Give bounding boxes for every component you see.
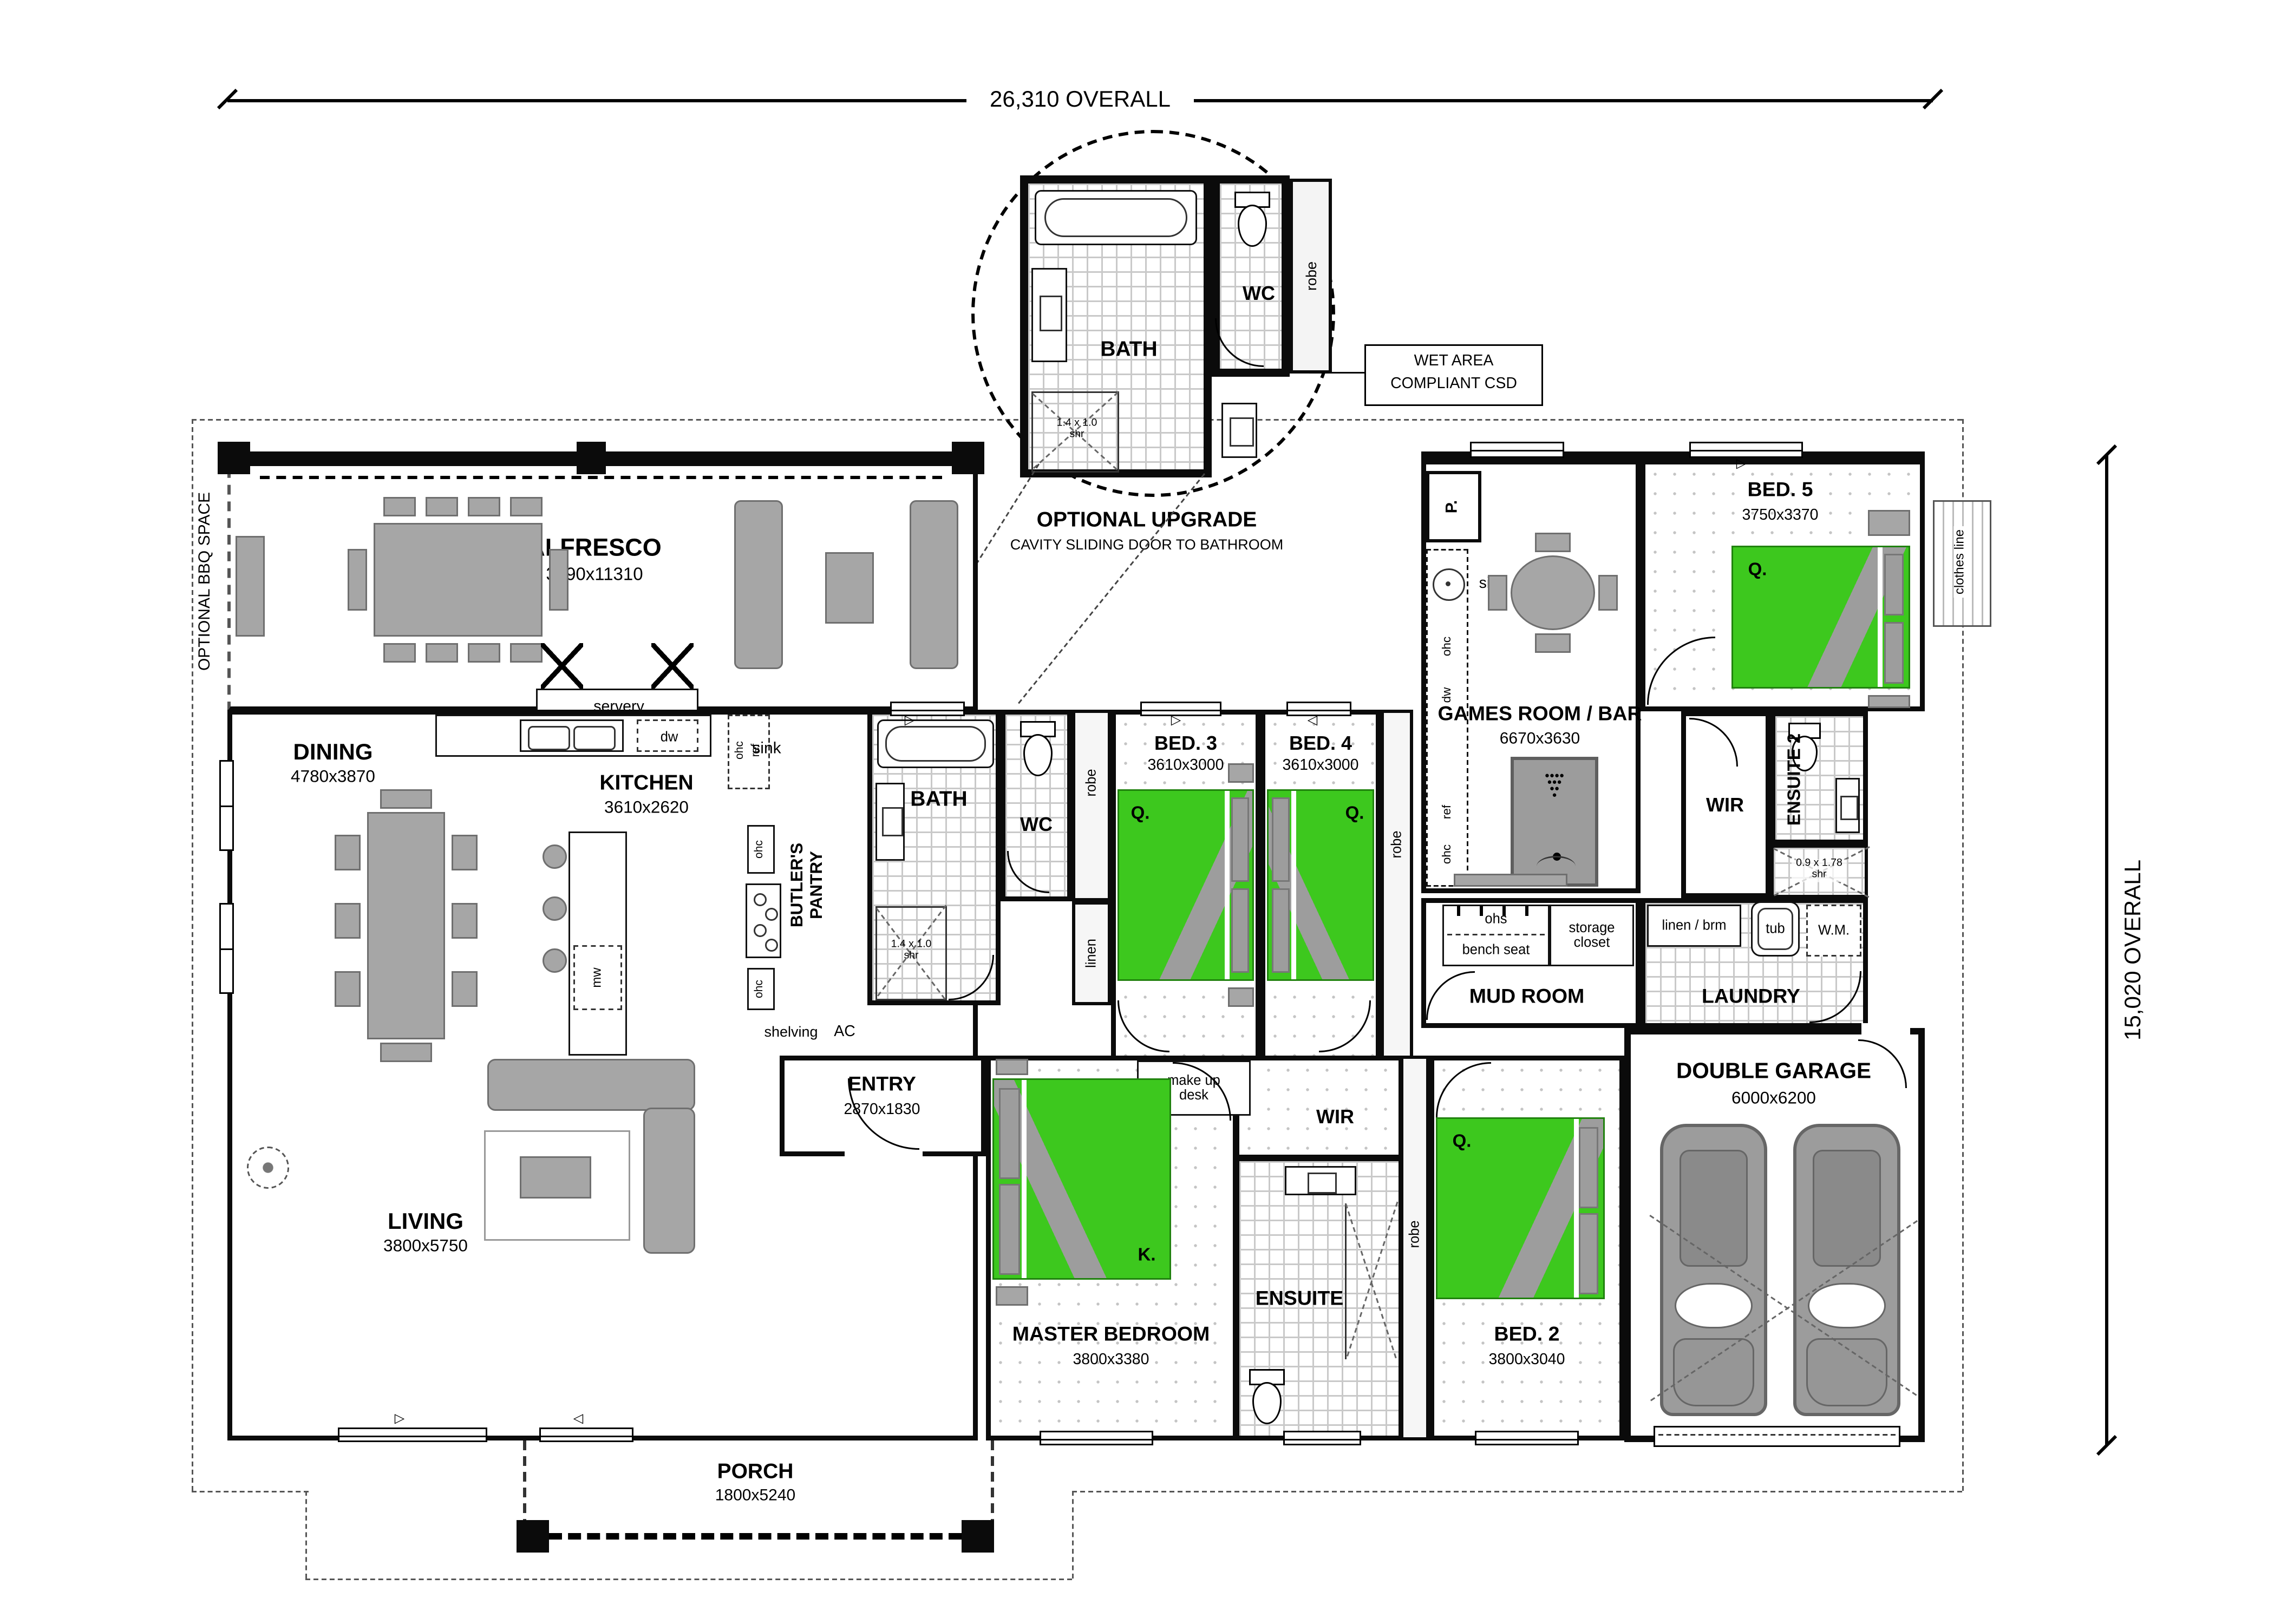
island-bench xyxy=(568,831,627,1056)
porch-label: PORCH xyxy=(717,1461,794,1483)
sofa xyxy=(910,500,958,669)
wet-area-callout: WET AREA COMPLIANT CSD xyxy=(1364,344,1543,406)
alfresco-label: ALFRESCO xyxy=(527,536,662,561)
detail-shower-label: 1.4 x 1.0 shr xyxy=(1053,420,1101,442)
roofline xyxy=(1072,1491,1074,1579)
window-marker-icon: ▷ xyxy=(1171,714,1181,728)
roofline xyxy=(192,419,193,1491)
shower-icon xyxy=(1345,1203,1395,1359)
detail-bath-room: BATH 1.4 x 1.0 shr xyxy=(1020,175,1212,477)
garage-label: DOUBLE GARAGE xyxy=(1676,1060,1871,1084)
mw-label: mw xyxy=(591,967,604,987)
credenza xyxy=(1454,874,1567,887)
bed3-label: BED. 3 xyxy=(1154,734,1217,754)
plant-icon xyxy=(247,1147,289,1189)
living-label: LIVING xyxy=(388,1209,463,1233)
bed2-dims: 3800x3040 xyxy=(1488,1353,1565,1369)
chair xyxy=(510,643,543,663)
robe-bed3 xyxy=(1072,710,1111,901)
linen-brm-label: linen / brm xyxy=(1662,919,1726,933)
pantry-label: P. xyxy=(1445,500,1462,514)
window-marker-icon: ▷ xyxy=(1736,457,1746,471)
chair xyxy=(468,643,500,663)
car-icon xyxy=(1660,1124,1767,1416)
side-table xyxy=(1228,763,1254,783)
window xyxy=(1040,1431,1153,1445)
dw-label: dw xyxy=(1441,687,1454,703)
sofa xyxy=(734,500,783,669)
chair xyxy=(452,971,478,1007)
stool xyxy=(543,844,567,869)
porch-post xyxy=(517,1520,549,1553)
window xyxy=(890,702,965,716)
chair xyxy=(1598,575,1618,611)
post xyxy=(952,442,984,474)
window xyxy=(1283,1431,1361,1445)
bench-seat-label: bench seat xyxy=(1462,943,1530,958)
porch-dims: 1800x5240 xyxy=(715,1489,796,1506)
dim-line-top-left xyxy=(227,99,966,102)
mudroom-label: MUD ROOM xyxy=(1469,986,1584,1007)
detail-robe-label: robe xyxy=(1305,261,1320,291)
window xyxy=(338,1427,487,1442)
clothes-line-label: clothes line xyxy=(1953,526,1967,598)
king-label: K. xyxy=(1138,1248,1156,1267)
detail-robe: robe xyxy=(1290,179,1332,374)
bed4-label: BED. 4 xyxy=(1289,734,1352,754)
floor-plan-canvas: 26,310 OVERALL 15,020 OVERALL BATH 1.4 x… xyxy=(0,0,2274,1624)
kitchen-label: KITCHEN xyxy=(599,772,693,794)
chair xyxy=(383,497,416,516)
ohc-label: ohc xyxy=(735,741,747,759)
linen-label: linen xyxy=(1084,939,1099,968)
dining-label: DINING xyxy=(293,740,373,764)
round-table xyxy=(1511,555,1595,630)
side-table xyxy=(996,1286,1028,1306)
toilet-icon xyxy=(1234,192,1270,247)
chair xyxy=(452,903,478,939)
vanity-icon xyxy=(1285,1166,1356,1195)
master-label: MASTER BEDROOM xyxy=(1012,1324,1210,1345)
garage-dims: 6000x6200 xyxy=(1731,1090,1816,1108)
overall-height-dimension: 15,020 OVERALL xyxy=(2121,860,2145,1040)
ac-label: AC xyxy=(834,1025,855,1041)
queen-label: Q. xyxy=(1748,562,1767,581)
queen-label: Q. xyxy=(1345,806,1364,825)
bed4-dims: 3610x3000 xyxy=(1282,758,1358,775)
dw-label: dw xyxy=(661,730,678,745)
queen-label: Q. xyxy=(1131,806,1150,825)
toilet-icon xyxy=(1020,721,1056,776)
window-marker-icon: ◁ xyxy=(573,1412,583,1426)
dim-line-top-right xyxy=(1194,99,1933,102)
side-table xyxy=(1868,695,1910,708)
window xyxy=(1475,1431,1579,1445)
vanity-icon xyxy=(1031,268,1067,362)
post xyxy=(218,442,250,474)
side-table xyxy=(996,1059,1028,1075)
cooktop-icon xyxy=(746,883,781,958)
window xyxy=(219,903,234,994)
wm-label: W.M. xyxy=(1818,924,1850,938)
roofline xyxy=(305,1491,307,1579)
ohc-label: ohc xyxy=(1441,844,1454,864)
wir-label: WIR xyxy=(1316,1107,1354,1128)
shelving-label: shelving xyxy=(764,1025,818,1040)
ensuite2-shower-label: 0.9 x 1.78 shr xyxy=(1792,860,1847,882)
chair xyxy=(549,549,568,611)
living-dims: 3800x5750 xyxy=(383,1238,468,1256)
bed3-dims: 3610x3000 xyxy=(1147,758,1224,775)
wet-area-line2: COMPLIANT CSD xyxy=(1390,377,1517,393)
vanity-icon xyxy=(1835,778,1860,833)
queen-label: Q. xyxy=(1453,1134,1472,1153)
chair xyxy=(426,643,458,663)
tv-unit xyxy=(520,1156,591,1199)
side-table xyxy=(1868,510,1910,536)
bathtub-icon xyxy=(877,719,994,768)
ohc-label: ohc xyxy=(754,840,766,859)
dining-table xyxy=(367,812,445,1039)
chair xyxy=(426,497,458,516)
vanity-icon xyxy=(875,783,905,861)
window-marker-icon: ▷ xyxy=(905,714,914,728)
callout-leader xyxy=(1309,372,1364,374)
chair xyxy=(335,903,361,939)
games-dims: 6670x3630 xyxy=(1500,732,1580,749)
chair xyxy=(383,643,416,663)
laundry-label: LAUNDRY xyxy=(1702,986,1800,1007)
stool xyxy=(543,896,567,921)
robe-label: robe xyxy=(1408,1220,1422,1248)
ohs-label: ohs xyxy=(1485,912,1507,927)
chair xyxy=(510,497,543,516)
window xyxy=(539,1427,633,1442)
chair xyxy=(380,1043,432,1062)
chair xyxy=(335,971,361,1007)
coffee-table xyxy=(825,552,874,624)
roofline xyxy=(192,1491,309,1492)
post xyxy=(577,442,606,474)
robe-label: robe xyxy=(1084,769,1099,796)
games-label: GAMES ROOM / BAR xyxy=(1437,704,1642,725)
ensuite-label: ENSUITE xyxy=(1256,1288,1344,1309)
bath-label: BATH xyxy=(910,788,967,810)
ohc-label: ohc xyxy=(754,980,766,998)
optional-bbq-note: OPTIONAL BBQ SPACE xyxy=(197,484,216,679)
wc-label: WC xyxy=(1020,815,1053,835)
window xyxy=(1689,442,1803,458)
dishwasher: dw xyxy=(637,719,698,752)
window-winder-icon xyxy=(651,643,694,689)
ohc-label: ohc xyxy=(1441,637,1454,656)
bed2-label: BED. 2 xyxy=(1494,1324,1560,1345)
detail-wc-label: WC xyxy=(1243,284,1275,304)
chair xyxy=(1488,575,1507,611)
window-winder-icon xyxy=(541,643,583,689)
porch-edge xyxy=(549,1533,962,1540)
roofline xyxy=(1072,1491,1962,1492)
robe-bed4 xyxy=(1381,710,1413,1060)
window-marker-icon: ▷ xyxy=(395,1412,404,1426)
chair xyxy=(348,549,367,611)
tub-label: tub xyxy=(1766,922,1785,937)
kitchen-sink-icon xyxy=(520,719,624,752)
sink-label: sink xyxy=(752,742,781,759)
bed5-label: BED. 5 xyxy=(1748,480,1813,501)
vanity-icon xyxy=(1221,403,1257,458)
dim-line-right xyxy=(2105,455,2108,1445)
toilet-icon xyxy=(1249,1369,1285,1424)
bathtub-icon xyxy=(1035,190,1197,245)
detail-bath-label: BATH xyxy=(1100,338,1157,361)
window xyxy=(1470,442,1564,458)
overall-width-dimension: 26,310 OVERALL xyxy=(990,87,1171,111)
sofa xyxy=(643,1108,695,1254)
master-dims: 3800x3380 xyxy=(1073,1353,1149,1369)
bar-sink-icon xyxy=(1433,568,1465,601)
window xyxy=(219,760,234,851)
outdoor-table xyxy=(374,523,543,637)
dining-dims: 4780x3870 xyxy=(291,769,375,787)
side-table xyxy=(1228,987,1254,1007)
upgrade-title: OPTIONAL UPGRADE xyxy=(1037,509,1257,531)
sofa xyxy=(487,1059,695,1111)
garage-rear-door-opening xyxy=(1861,1023,1910,1036)
kitchen-dims: 3610x2620 xyxy=(604,800,689,817)
chair xyxy=(468,497,500,516)
wir2-label: WIR xyxy=(1706,795,1744,816)
storage-closet-label: storage closet xyxy=(1554,921,1629,950)
window xyxy=(1286,702,1351,716)
chair xyxy=(1535,533,1571,552)
bath-shower-label: 1.4 x 1.0 shr xyxy=(888,941,934,963)
chair xyxy=(380,789,432,809)
chair xyxy=(1535,633,1571,653)
garage-door xyxy=(1654,1426,1900,1447)
butlers-pantry-label: BUTLER'S PANTRY xyxy=(788,815,827,955)
bed5-dims: 3750x3370 xyxy=(1742,508,1818,525)
chair xyxy=(335,835,361,870)
stool xyxy=(543,948,567,973)
ensuite2-label: ENSUITE 2 xyxy=(1787,734,1806,826)
window-marker-icon: ◁ xyxy=(1308,714,1317,728)
chair xyxy=(452,835,478,870)
wet-area-line1: WET AREA xyxy=(1414,354,1494,370)
ref-label: ref xyxy=(1441,805,1454,819)
roofline xyxy=(305,1579,1072,1580)
porch-post xyxy=(962,1520,994,1553)
pool-table: ●●●●●●●●●● xyxy=(1511,757,1598,887)
robe-label: robe xyxy=(1390,830,1404,858)
bbq-icon xyxy=(236,536,265,637)
